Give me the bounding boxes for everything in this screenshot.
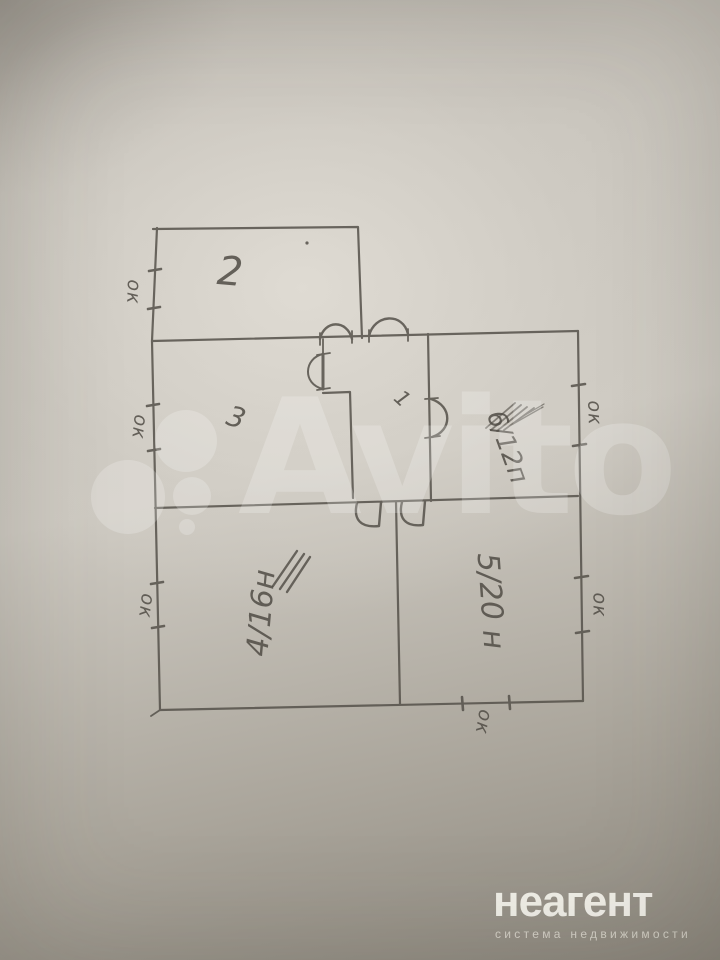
floor-plan-photo: 2 3 1 6/12п 5/20 н 4/16н ок ок ок ок ок … bbox=[0, 0, 720, 960]
window-label: ок bbox=[128, 414, 150, 441]
window-label: ок bbox=[590, 592, 609, 617]
room-label-2: 2 bbox=[216, 251, 245, 293]
wall-bottom bbox=[160, 701, 583, 710]
room-label-5-20: 5/20 н bbox=[472, 552, 509, 650]
wall-top bbox=[152, 331, 578, 341]
neagent-logo-title: неагент bbox=[493, 880, 691, 924]
window-label: ок bbox=[135, 592, 157, 619]
window-label: ок bbox=[471, 708, 494, 736]
window-label: ок bbox=[123, 279, 143, 305]
corner-overshoot bbox=[151, 710, 160, 716]
logo-circle bbox=[179, 519, 195, 535]
logo-circle bbox=[155, 410, 217, 472]
neagent-logo-subtitle: система недвижимости bbox=[495, 927, 691, 941]
pencil-dot bbox=[305, 241, 308, 244]
room-label-4-16: 4/16н bbox=[243, 568, 280, 657]
logo-circle bbox=[173, 477, 211, 515]
logo-circle bbox=[91, 460, 165, 534]
neagent-logo: неагент система недвижимости bbox=[493, 880, 691, 941]
entrance-door-arc bbox=[369, 318, 408, 336]
avito-watermark-text: Avito bbox=[238, 378, 672, 538]
wall-room2 bbox=[153, 227, 362, 338]
